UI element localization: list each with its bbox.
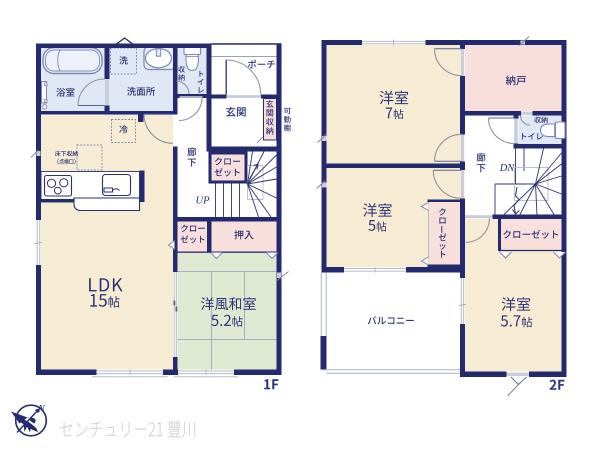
svg-text:UP: UP	[196, 196, 211, 207]
svg-text:DN: DN	[499, 163, 516, 174]
svg-text:N: N	[37, 404, 46, 415]
